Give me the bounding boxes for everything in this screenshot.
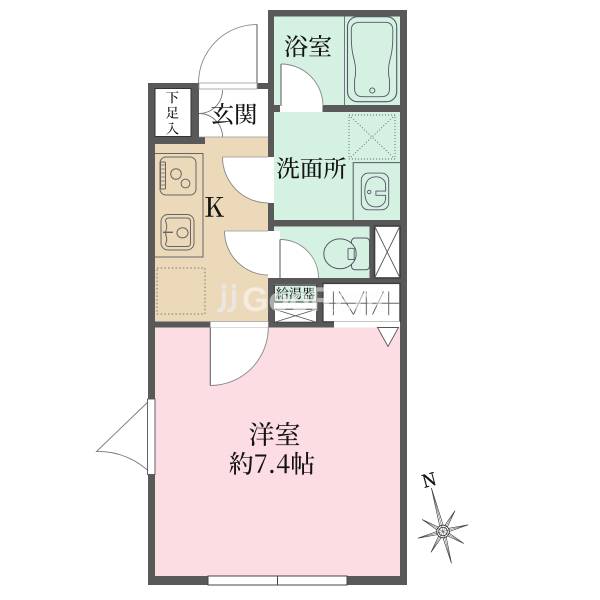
svg-text:GooRent: GooRent bbox=[242, 281, 386, 319]
